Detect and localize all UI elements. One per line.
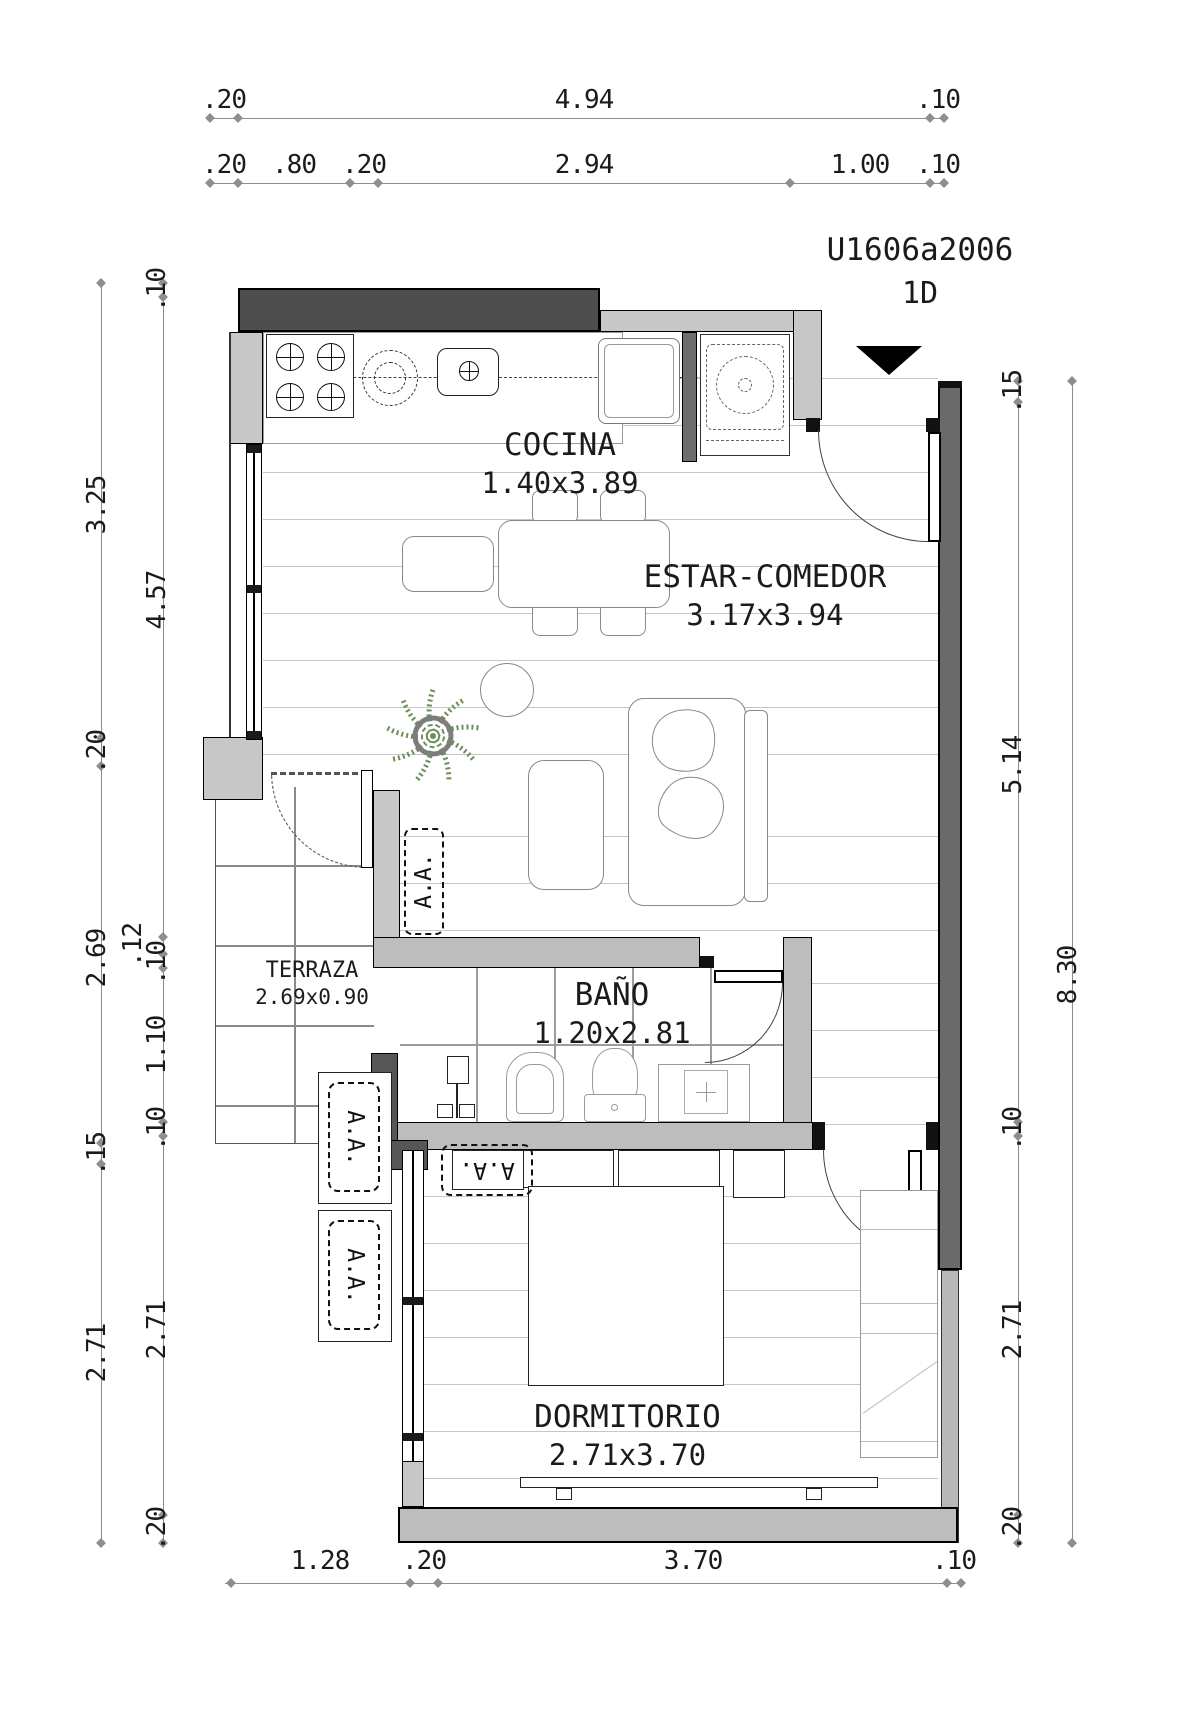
window-mullion [247, 445, 261, 453]
room-name: BAÑO [500, 976, 724, 1014]
dimension-tick [785, 178, 795, 188]
dimension-label: 3.70 [664, 1546, 723, 1576]
entry-jamb-right [926, 418, 940, 432]
stove [266, 334, 354, 418]
room-name: TERRAZA [222, 958, 402, 984]
stove-burner-icon [317, 343, 345, 371]
wall-terraza-estar [373, 790, 400, 953]
dimension-label: 2.71 [142, 1301, 172, 1360]
wood-floor-corridor [812, 937, 938, 1150]
tv-bench [520, 1477, 878, 1488]
kitchen-window [246, 444, 262, 740]
wall-right-cap [938, 381, 962, 388]
wardrobe [860, 1190, 938, 1458]
wall-bath-top [373, 937, 700, 968]
dimension-label: .20 [82, 730, 112, 774]
dimension-label: .20 [202, 85, 246, 115]
dimension-line [210, 183, 944, 184]
dimension-label: .20 [202, 150, 246, 180]
wall-left-face-line [229, 332, 231, 800]
unit-title: U1606a2006 1D [775, 228, 1065, 316]
room-size: 2.71x3.70 [470, 1436, 785, 1474]
bath-door-jamb [700, 956, 714, 968]
tv-bench-leg [806, 1488, 822, 1500]
nightstand [733, 1150, 785, 1198]
bedroom-door-jamb-right [926, 1122, 938, 1150]
bidet-inner [516, 1064, 554, 1114]
pillar-top-left [230, 332, 263, 444]
dimension-label: 2.71 [998, 1301, 1028, 1360]
bath-door-leaf [714, 970, 783, 983]
shower-tap-icon [437, 1104, 453, 1118]
ac-unit-label: A.A. [342, 1110, 368, 1165]
wardrobe-diagonal-line [863, 1361, 937, 1414]
dimension-label: 3.25 [82, 476, 112, 535]
window-mullion [403, 1433, 423, 1441]
dimension-tick [96, 1538, 106, 1548]
window-mullion [247, 731, 261, 739]
room-label-estar: ESTAR-COMEDOR 3.17x3.94 [590, 558, 940, 634]
wall-bath-right [783, 937, 812, 1136]
dimension-line [225, 1583, 965, 1584]
north-triangle-icon [856, 346, 922, 375]
window-mullion [403, 1297, 423, 1305]
wall-bottom [398, 1507, 958, 1543]
dimension-label: 2.71 [82, 1324, 112, 1383]
dimension-tick [1067, 376, 1077, 386]
room-name: DORMITORIO [470, 1398, 785, 1436]
room-name: ESTAR-COMEDOR [590, 558, 940, 596]
dimension-label: 4.94 [555, 85, 614, 115]
bedroom-door-jamb-left [813, 1122, 825, 1150]
wall-bedroom-top [366, 1122, 813, 1150]
dimension-label: .15 [82, 1132, 112, 1176]
window-mullion [247, 585, 261, 593]
dimension-tick [433, 1578, 443, 1588]
wall-right-lower [941, 1270, 959, 1543]
wardrobe-shelf-line [861, 1333, 937, 1334]
room-size: 2.69x0.90 [222, 984, 402, 1010]
dimension-label: .10 [142, 1107, 172, 1151]
dimension-label: 4.57 [142, 571, 172, 630]
dimension-tick [1067, 1538, 1077, 1548]
floor-plan: A.A. A.A. A.A. A.A. COCINA 1.40x3.89 EST… [0, 0, 1183, 1711]
dimension-label: .10 [916, 150, 960, 180]
wall-terraza-door-block [203, 737, 263, 800]
unit-type: 1D [775, 272, 1065, 316]
dimension-label: 1.00 [831, 150, 890, 180]
plant-icon [371, 674, 495, 798]
stove-burner-icon [317, 383, 345, 411]
bedroom-window [402, 1150, 424, 1507]
faucet-icon [459, 361, 479, 381]
room-label-terraza: TERRAZA 2.69x0.90 [222, 958, 402, 1010]
fridge-inner [604, 344, 674, 418]
dimension-tick [226, 1578, 236, 1588]
bed [528, 1186, 724, 1386]
dimension-label: 1.28 [291, 1546, 350, 1576]
dimension-tick [942, 1578, 952, 1588]
shower-mixer-stem [456, 1084, 458, 1118]
dimension-tick [405, 1578, 415, 1588]
dimension-label: .10 [932, 1546, 976, 1576]
dimension-label: .10 [142, 941, 172, 985]
dimension-label: .15 [998, 370, 1028, 414]
dimension-line [210, 118, 944, 119]
dimension-label: 2.69 [82, 929, 112, 988]
dimension-label: .10 [916, 85, 960, 115]
shower-tap-icon [459, 1104, 475, 1118]
room-label-bano: BAÑO 1.20x2.81 [500, 976, 724, 1052]
wall-right [938, 381, 962, 1270]
dimension-tick [96, 278, 106, 288]
ac-unit-label: A.A. [411, 853, 437, 908]
dimension-line [1018, 381, 1019, 1543]
room-name: COCINA [430, 426, 690, 464]
room-size: 1.40x3.89 [430, 464, 690, 502]
dimension-label: .20 [402, 1546, 446, 1576]
ac-unit-label: A.A. [342, 1248, 368, 1303]
wardrobe-shelf-line [861, 1441, 937, 1442]
stove-burner-icon [276, 343, 304, 371]
dimension-label: .80 [272, 150, 316, 180]
dimension-label: 1.10 [142, 1016, 172, 1075]
toilet-button-icon [611, 1104, 618, 1111]
room-size: 3.17x3.94 [590, 596, 940, 634]
wardrobe-shelf-line [861, 1303, 937, 1304]
washer-hub-icon [738, 378, 752, 392]
wall-top [238, 288, 600, 332]
tv-bench-leg [556, 1488, 572, 1500]
dimension-label: .10 [998, 1107, 1028, 1151]
dimension-label: .20 [998, 1507, 1028, 1551]
stove-burner-icon [276, 383, 304, 411]
sofa-back [744, 710, 768, 902]
dimension-tick [956, 1578, 966, 1588]
unit-code: U1606a2006 [775, 228, 1065, 272]
dimension-label: 5.14 [998, 736, 1028, 795]
room-size: 1.20x2.81 [500, 1014, 724, 1052]
dimension-label: .10 [142, 268, 172, 312]
small-appliance-inner-icon [374, 362, 406, 394]
wardrobe-shelf-line [861, 1229, 937, 1230]
room-label-dormitorio: DORMITORIO 2.71x3.70 [470, 1398, 785, 1474]
ac-unit-label: A.A. [459, 1157, 514, 1183]
bed-shelf [618, 1150, 720, 1188]
washer-dash-line [706, 440, 784, 441]
dimension-label: .20 [142, 1507, 172, 1551]
entry-door-leaf [928, 432, 941, 542]
dimension-label: 8.30 [1053, 946, 1083, 1005]
shower-mixer-icon [447, 1056, 469, 1084]
window-sill-block [403, 1461, 423, 1506]
coffee-table [528, 760, 604, 890]
room-label-cocina: COCINA 1.40x3.89 [430, 426, 690, 502]
wall-niche-right [793, 310, 822, 420]
dining-bench [402, 536, 494, 592]
dimension-label: .20 [342, 150, 386, 180]
dimension-label: 2.94 [555, 150, 614, 180]
bath-basin [684, 1070, 728, 1114]
